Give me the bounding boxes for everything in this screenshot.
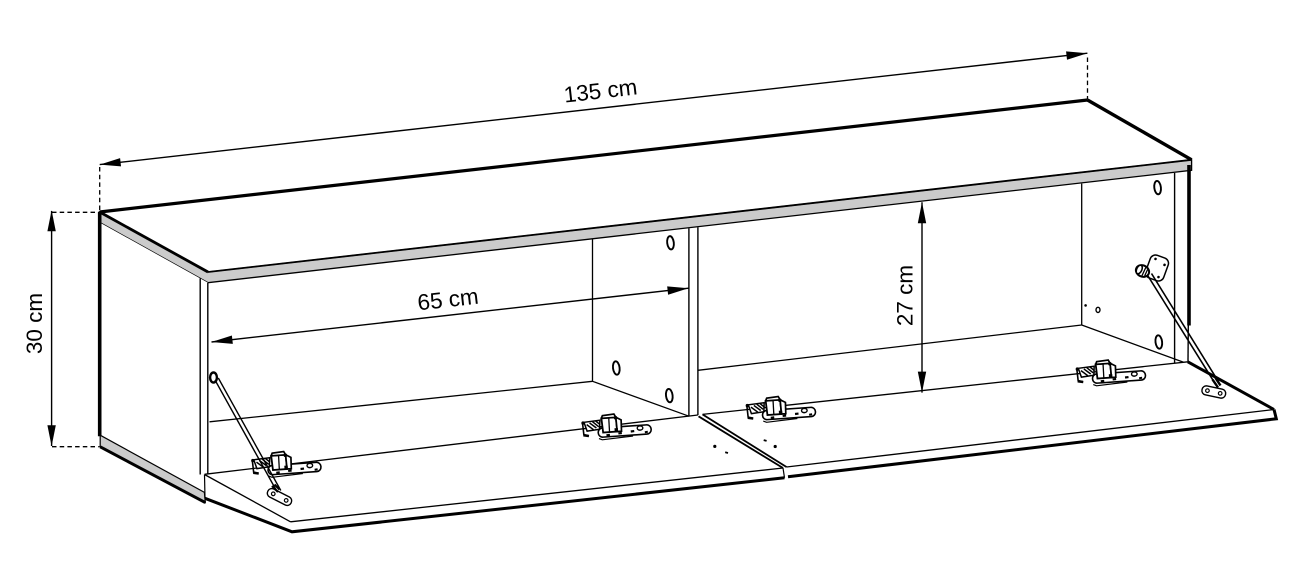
svg-text:27 cm: 27 cm	[893, 265, 918, 326]
svg-text:30 cm: 30 cm	[22, 293, 47, 354]
